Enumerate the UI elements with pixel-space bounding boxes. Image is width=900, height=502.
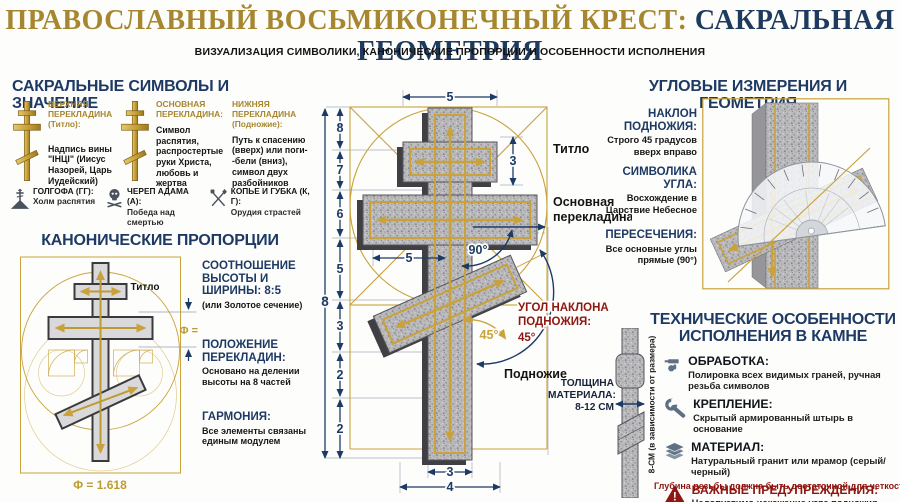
angle-title: ПЕРЕСЕЧЕНИЯ:	[597, 229, 697, 242]
page-title: ПРАВОСЛАВНЫЙ ВОСЬМИКОНЕЧНЫЙ КРЕСТ: САКРА…	[0, 6, 900, 68]
protractor-figure	[702, 98, 890, 290]
dim-top-width: 5	[447, 90, 454, 104]
stone-profile	[613, 328, 647, 498]
dim-segment: 2	[337, 422, 344, 436]
dim-base-width: 4	[447, 480, 454, 494]
titlo-label: Титло	[131, 282, 160, 293]
dim-segment: 8	[337, 121, 344, 135]
tech-item-mounting: КРЕПЛЕНИЕ: Скрытый армированный штырь в …	[664, 398, 897, 435]
dim-segment: 2	[337, 368, 344, 382]
svg-text:!: !	[673, 490, 677, 502]
dim-total-height: 8	[321, 294, 329, 309]
warning-extra-line: Глубина резьбы должна быть достаточной д…	[654, 481, 900, 491]
cross-blueprint: 5 3 5 8 8 7 6 5 3 2 2 3 4 90° 45° Титло …	[312, 80, 632, 502]
tech-text: МАТЕРИАЛ: Натуральный гранит или мрамор …	[691, 441, 897, 478]
angle-title: СИМВОЛИКА УГЛА:	[597, 166, 697, 191]
angle-sub: Восхождение в Царствие Небесное	[597, 193, 697, 216]
tech-sub: Натуральный гранит или мрамор (серый/чер…	[691, 455, 897, 478]
skull-icon	[105, 186, 124, 210]
tech-title: КРЕПЛЕНИЕ:	[693, 398, 897, 411]
proportion-sub: Основано на делении высоты на 8 частей	[202, 366, 310, 388]
proportion-title: СООТНОШЕНИЕ ВЫСОТЫ И ШИРИНЫ: 8:5	[202, 260, 310, 298]
dim-segment: 3	[337, 319, 344, 333]
note-line: ПОДНОЖИЯ:	[518, 316, 591, 328]
dim-post-width: 3	[447, 465, 454, 479]
legend-sub: Победа над смертью	[127, 207, 205, 228]
angle-item-symbolism: СИМВОЛИКА УГЛА: Восхождение в Царствие Н…	[597, 166, 697, 217]
tech-title: МАТЕРИАЛ:	[691, 441, 897, 454]
angle-title: НАКЛОН ПОДНОЖИЯ:	[597, 108, 697, 133]
note-line: УГОЛ НАКЛОНА	[518, 302, 609, 314]
technical-items: ОБРАБОТКА: Полировка всех видимых граней…	[664, 355, 897, 502]
angle-45-label: 45°	[480, 328, 499, 342]
warning-line: Недопустимо искажение угла подножия.	[692, 497, 897, 502]
proportion-item-ratio: СООТНОШЕНИЕ ВЫСОТЫ И ШИРИНЫ: 8:5 (или Зо…	[202, 260, 310, 311]
legend-item-spear-sponge: КОПЬЕ И ГУБКА (К, Г): Орудия страстей	[209, 186, 312, 227]
symbol-text: Символ распятия, распростертые руки Хрис…	[156, 125, 226, 189]
legend-title: ГОЛГОФА (ГГ):	[33, 186, 95, 196]
angle-sub: Строго 45 градусов вверх вправо	[597, 135, 697, 158]
legend-text: ГОЛГОФА (ГГ): Холм распятия	[33, 186, 95, 207]
page-subtitle: ВИЗУАЛИЗАЦИЯ СИМВОЛИКИ, КАНОНИЧЕСКИЕ ПРО…	[0, 46, 900, 58]
symbol-column-main-bar: ОСНОВНАЯ ПЕРЕКЛАДИНА: Символ распятия, р…	[156, 100, 226, 189]
dim-segment: 7	[337, 163, 344, 177]
angle-90-label: 90°	[469, 243, 488, 257]
wrench-icon	[664, 398, 687, 419]
layers-icon	[664, 441, 685, 462]
spear-sponge-icon	[209, 186, 228, 210]
phi-label: Φ =	[180, 325, 199, 337]
tech-sub: Скрытый армированный штырь в основание	[693, 412, 897, 435]
tech-text: КРЕПЛЕНИЕ: Скрытый армированный штырь в …	[693, 398, 897, 435]
footrest-angle-note: УГОЛ НАКЛОНА ПОДНОЖИЯ: 45°	[518, 302, 609, 344]
dim-segment: 6	[337, 207, 344, 221]
legend-sub: Орудия страстей	[231, 207, 312, 217]
legend-item-golgotha: ГОЛГОФА (ГГ): Холм распятия	[10, 186, 101, 227]
symbol-column-foot-bar: НИЖНЯЯ ПЕРЕКЛАДИНА (Подножие): Путь к сп…	[232, 100, 310, 189]
symbol-text: Путь к спасению (вверх) или поги- -бели …	[232, 135, 310, 189]
legend-title: ЧЕРЕП АДАМА (А):	[127, 186, 205, 207]
stone-side-note: 8-СМ (в зависимости от размера)	[647, 323, 660, 487]
symbol-title: ВЕРХНЯЯ ПЕРЕКЛАДИНА (Титло):	[48, 100, 114, 130]
titlo-label: Титло	[553, 142, 590, 156]
tech-sub: Полировка всех видимых граней, ручная ре…	[688, 369, 897, 392]
symbol-title: ОСНОВНАЯ ПЕРЕКЛАДИНА:	[156, 100, 226, 120]
angle-item-intersections: ПЕРЕСЕЧЕНИЯ: Все основные углы прямые (9…	[597, 229, 697, 267]
proportion-title: ГАРМОНИЯ:	[202, 411, 310, 424]
gold-cross-icon	[12, 100, 42, 182]
angle-item-slope: НАКЛОН ПОДНОЖИЯ: Строго 45 градусов ввер…	[597, 108, 697, 159]
angle-sub: Все основные углы прямые (90°)	[597, 244, 697, 267]
symbol-column-top-bar: ВЕРХНЯЯ ПЕРЕКЛАДИНА (Титло): Надпись вин…	[48, 100, 114, 189]
legend-item-skull: ЧЕРЕП АДАМА (А): Победа над смертью	[105, 186, 205, 227]
page-title-gold: ПРАВОСЛАВНЫЙ ВОСЬМИКОНЕЧНЫЙ КРЕСТ:	[5, 5, 695, 36]
phi-value: Φ = 1.618	[30, 478, 170, 492]
proportion-title: ПОЛОЖЕНИЕ ПЕРЕКЛАДИН:	[202, 339, 310, 364]
symbols-legend: ГОЛГОФА (ГГ): Холм распятия ЧЕРЕП АДАМА …	[10, 186, 312, 227]
tech-text: ОБРАБОТКА: Полировка всех видимых граней…	[688, 355, 897, 392]
golgotha-icon	[10, 186, 30, 210]
legend-sub: Холм распятия	[33, 196, 95, 206]
dim-segment: 5	[337, 262, 344, 276]
proportions-section-heading: КАНОНИЧЕСКИЕ ПРОПОРЦИИ	[12, 233, 308, 250]
legend-text: КОПЬЕ И ГУБКА (К, Г): Орудия страстей	[231, 186, 312, 217]
proportion-item-harmony: ГАРМОНИЯ: Все элементы связаны единым мо…	[202, 411, 310, 447]
proportion-item-position: ПОЛОЖЕНИЕ ПЕРЕКЛАДИН: Основано на делени…	[202, 339, 310, 388]
thickness-label: ТОЛЩИНА МАТЕРИАЛА: 8-12 СМ	[548, 378, 614, 415]
technical-section-heading: ТЕХНИЧЕСКИЕ ОСОБЕННОСТИ ИСПОЛНЕНИЯ В КАМ…	[650, 312, 896, 346]
symbols-row: ВЕРХНЯЯ ПЕРЕКЛАДИНА (Титло): Надпись вин…	[12, 100, 310, 189]
proportion-sub: Все элементы связаны единым модулем	[202, 426, 310, 448]
gold-cross-icon	[120, 100, 150, 182]
tech-item-material: МАТЕРИАЛ: Натуральный гранит или мрамор …	[664, 441, 897, 478]
dim-titlo-height: 3	[510, 154, 517, 168]
symbol-title: НИЖНЯЯ ПЕРЕКЛАДИНА (Подножие):	[232, 100, 310, 130]
polish-icon	[664, 355, 682, 376]
proportion-sub: (или Золотое сечение)	[202, 300, 310, 311]
infographic-poster: ПРАВОСЛАВНЫЙ ВОСЬМИКОНЕЧНЫЙ КРЕСТ: САКРА…	[0, 0, 900, 502]
note-line: 45°	[518, 332, 536, 344]
legend-text: ЧЕРЕП АДАМА (А): Победа над смертью	[127, 186, 205, 227]
tech-item-processing: ОБРАБОТКА: Полировка всех видимых граней…	[664, 355, 897, 392]
dim-mid-width: 5	[406, 251, 413, 265]
tech-title: ОБРАБОТКА:	[688, 355, 897, 368]
golden-ratio-diagram: Титло Φ =	[18, 254, 204, 478]
symbol-text: Надпись вины "ІНЦІ" (Иисус Назорей, Царь…	[48, 144, 114, 187]
legend-title: КОПЬЕ И ГУБКА (К, Г):	[231, 186, 312, 207]
